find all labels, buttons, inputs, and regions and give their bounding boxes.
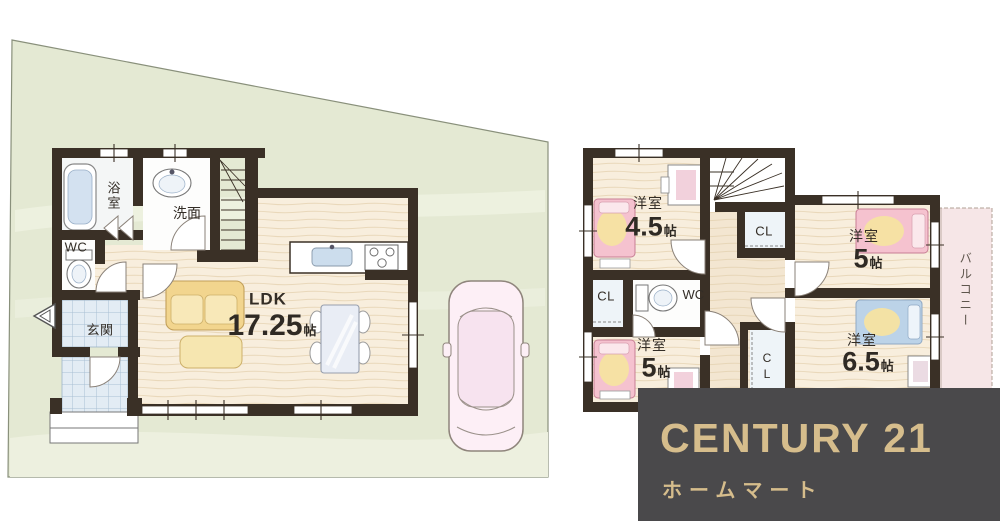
wc2-label: WC: [683, 288, 698, 302]
floor-plan-page: 浴室 洗面 WC 玄関 LDK 17.25 帖 洋室 4.5 帖 洋室 5 帖 …: [0, 0, 1000, 521]
size-unit: 帖: [664, 225, 677, 238]
bedroom-left-label: 洋室: [637, 338, 667, 352]
bedroom-right-size: 5 帖: [853, 246, 882, 273]
closet-top-label: CL: [755, 225, 773, 238]
size-number: 6.5: [842, 349, 880, 376]
bed-icon: [594, 340, 635, 399]
size-number: 5: [853, 246, 868, 273]
ldk-size: 17.25 帖: [227, 311, 316, 341]
entrance-label: 玄関: [86, 324, 113, 337]
washroom-label: 洗面: [173, 206, 201, 220]
desk-icon: [908, 356, 933, 387]
size-unit: 帖: [881, 360, 894, 373]
size-number: 4.5: [625, 214, 663, 241]
century21-logo: CENTURY 21: [660, 415, 1000, 462]
ldk-size-unit: 帖: [304, 324, 317, 337]
bath-label: 浴室: [107, 181, 120, 211]
toilet-icon: [636, 285, 677, 311]
closet-mid-label: CL: [597, 290, 615, 303]
bedroom-large-size: 6.5 帖: [842, 349, 894, 376]
bathtub-icon: [64, 164, 96, 230]
wc-label: WC: [65, 241, 88, 254]
stairs: [710, 158, 784, 200]
car-icon: [443, 281, 529, 451]
size-number: 5: [641, 355, 656, 382]
bedroom-small-size: 4.5 帖: [625, 214, 677, 241]
closet-bottom-label: CL: [761, 351, 773, 383]
balcony-label: バルコニー: [958, 251, 971, 329]
bedroom-large-label: 洋室: [847, 333, 877, 347]
toilet-icon: [66, 250, 92, 288]
brand-banner: CENTURY 21 ホームマート: [638, 388, 1000, 521]
bedroom-left-size: 5 帖: [641, 355, 670, 382]
porch-step: [50, 412, 138, 428]
bedroom-small-label: 洋室: [633, 196, 663, 210]
ldk-size-number: 17.25: [227, 311, 302, 341]
bedroom-right-label: 洋室: [849, 229, 879, 243]
company-name: ホームマート: [662, 474, 1000, 503]
porch-step: [50, 428, 138, 443]
size-unit: 帖: [870, 257, 883, 270]
ldk-label: LDK: [249, 291, 287, 308]
sink-icon: [153, 169, 191, 197]
closet-mid-floor: [593, 280, 623, 327]
kitchen-counter: [290, 242, 408, 273]
size-unit: 帖: [658, 366, 671, 379]
